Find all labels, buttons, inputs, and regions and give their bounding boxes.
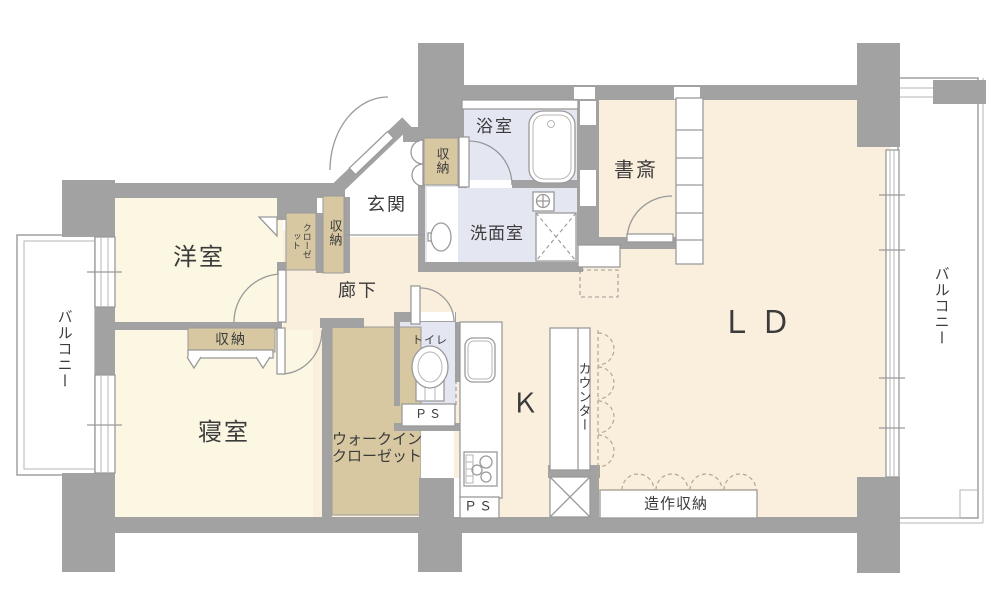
label-walk-in-closet: ウォークイン クローゼット (332, 431, 422, 466)
bathroom-top-duct (462, 100, 578, 109)
label-storage-hallway: 収納 (327, 219, 342, 247)
bathtub (529, 111, 575, 183)
label-western-room: 洋室 (173, 244, 225, 272)
label-wic-line2: クローゼット (332, 448, 422, 465)
label-wic-line1: ウォークイン (332, 431, 422, 448)
bookshelf (676, 98, 703, 264)
floor-plan-drawing (0, 0, 1000, 616)
label-counter: カウンター (576, 362, 591, 432)
label-balcony-right: バルコニー (932, 266, 949, 346)
label-hallway: 廊下 (338, 281, 378, 302)
label-entrance: 玄関 (367, 195, 407, 216)
kitchen-sink (465, 338, 495, 382)
label-built-in-storage: 造作収納 (644, 495, 708, 512)
stove (464, 452, 497, 486)
label-storage-bedroom: 収納 (215, 331, 247, 347)
label-kitchen: Ｋ (512, 388, 541, 419)
washer-space (536, 213, 576, 261)
floor-plan: ＬＤ Ｋ 洋室 寝室 玄関 廊下 浴室 洗面室 トイレ 書斎 ウォークイン クロ… (0, 0, 1000, 616)
kitchen-counter (460, 322, 502, 498)
label-balcony-left: バルコニー (55, 309, 72, 389)
label-ps-toilet: ＰＳ (415, 408, 443, 422)
label-bedroom: 寝室 (198, 419, 250, 447)
label-study: 書斎 (614, 160, 658, 183)
label-bathroom: 浴室 (476, 117, 514, 137)
storage-bedroom-door-track (188, 350, 273, 358)
label-ps-kitchen: ＰＳ (464, 500, 494, 515)
balcony-divider-panel (933, 80, 986, 104)
refrigerator-space (550, 477, 590, 517)
label-closet: クローゼット (290, 222, 312, 260)
label-storage-entrance: 収納 (434, 147, 449, 175)
label-living-dining: ＬＤ (721, 305, 799, 341)
void-space (421, 431, 454, 478)
label-toilet: トイレ (412, 335, 448, 348)
study-cabinet (578, 245, 620, 267)
label-washroom: 洗面室 (470, 224, 524, 244)
toilet-fixture (412, 346, 448, 401)
faucet-outlet (533, 192, 554, 211)
